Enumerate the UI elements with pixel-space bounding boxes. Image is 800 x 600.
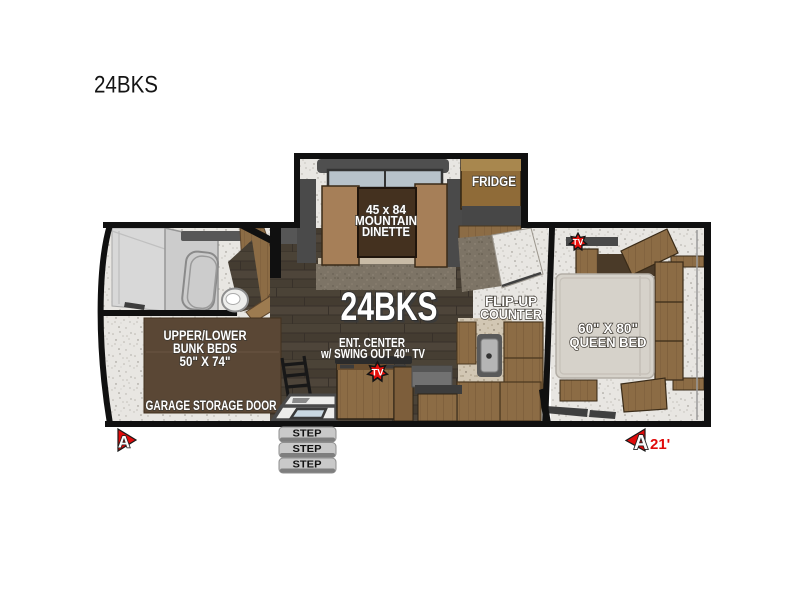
- svg-text:QUEEN BED: QUEEN BED: [570, 334, 647, 350]
- svg-text:TV: TV: [371, 368, 384, 379]
- svg-text:FRIDGE: FRIDGE: [472, 174, 516, 189]
- svg-text:A: A: [118, 433, 130, 452]
- svg-text:GARAGE STORAGE DOOR: GARAGE STORAGE DOOR: [146, 398, 277, 413]
- svg-text:STEP: STEP: [293, 459, 322, 471]
- svg-text:STEP: STEP: [293, 443, 322, 455]
- svg-text:DINETTE: DINETTE: [362, 225, 410, 239]
- svg-text:COUNTER: COUNTER: [480, 307, 542, 322]
- svg-text:21': 21': [650, 436, 670, 453]
- svg-text:24BKS: 24BKS: [94, 72, 158, 99]
- svg-text:STEP: STEP: [293, 428, 322, 440]
- svg-text:50" X 74": 50" X 74": [180, 354, 231, 369]
- svg-text:A: A: [634, 432, 648, 454]
- svg-text:24BKS: 24BKS: [341, 285, 438, 329]
- svg-text:w/ SWING OUT 40" TV: w/ SWING OUT 40" TV: [320, 347, 425, 361]
- svg-text:TV: TV: [573, 237, 584, 247]
